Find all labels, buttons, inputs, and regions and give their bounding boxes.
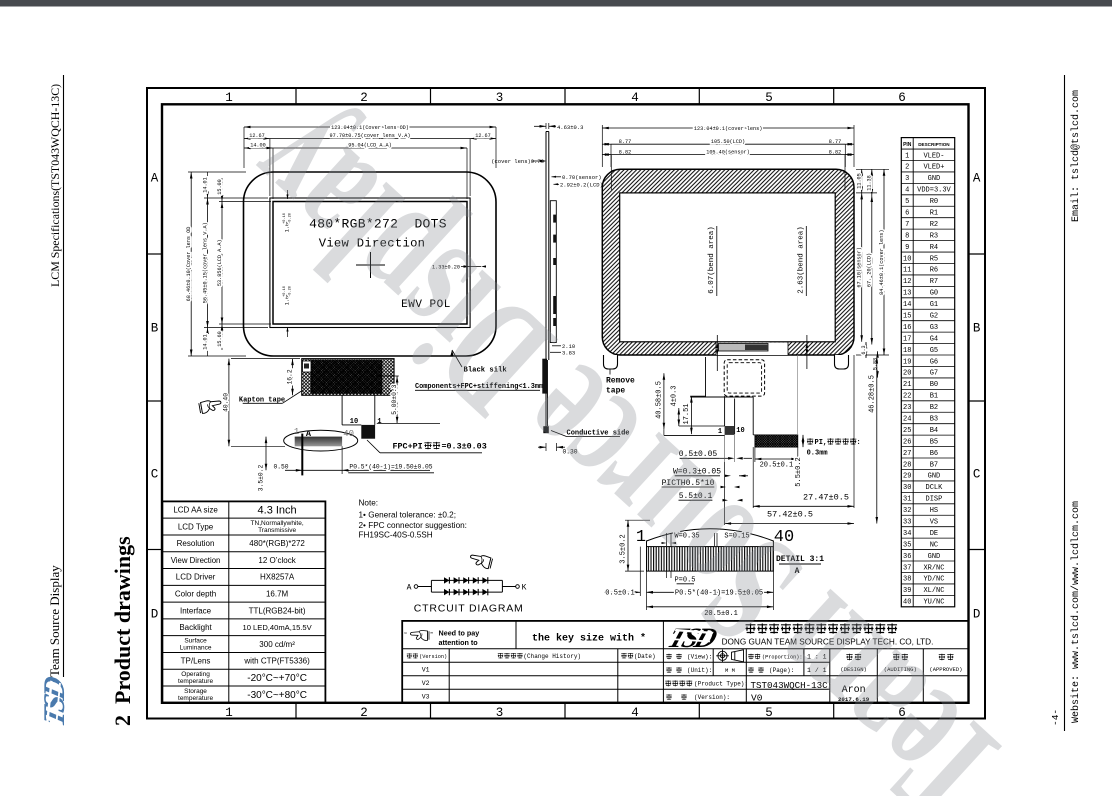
svg-text:PI,: PI, — [815, 439, 828, 447]
svg-text:4: 4 — [631, 91, 639, 105]
svg-text:5.88: 5.88 — [872, 358, 878, 370]
svg-text:4.63±0.3: 4.63±0.3 — [557, 124, 583, 131]
svg-text:19: 19 — [903, 358, 911, 366]
svg-text:1: 1 — [225, 706, 233, 720]
svg-text:5: 5 — [765, 91, 773, 105]
svg-text:11.38: 11.38 — [867, 175, 873, 191]
svg-text:Backlight: Backlight — [179, 623, 212, 632]
svg-text:0.70(sensor): 0.70(sensor) — [562, 174, 602, 181]
svg-text:32: 32 — [903, 507, 911, 515]
svg-text:4.3 Inch: 4.3 Inch — [258, 505, 297, 517]
svg-text:GND: GND — [928, 473, 941, 481]
svg-text:(Version): (Version) — [419, 654, 447, 660]
svg-text:B2: B2 — [930, 404, 938, 412]
svg-text:Interface: Interface — [180, 606, 212, 615]
svg-text:B6: B6 — [930, 450, 938, 458]
svg-text:4: 4 — [631, 706, 639, 720]
svg-text:2 Product drawings: 2 Product drawings — [110, 536, 135, 726]
svg-text:LCM Specifications(TST043WQCH-: LCM Specifications(TST043WQCH-13C) — [48, 84, 62, 287]
svg-text:11.05: 11.05 — [856, 173, 862, 189]
svg-text:15: 15 — [903, 312, 911, 320]
svg-text:R2: R2 — [930, 221, 938, 229]
svg-text:XR/NC: XR/NC — [923, 564, 944, 572]
svg-text:-30°C~+80°C: -30°C~+80°C — [247, 690, 307, 701]
svg-text:1: 1 — [294, 427, 299, 437]
svg-text:56.45±0.15(cover lens V.A): 56.45±0.15(cover lens V.A) — [202, 222, 208, 303]
svg-text:105.40(sensor): 105.40(sensor) — [706, 149, 750, 155]
svg-text:1: 1 — [377, 418, 381, 426]
svg-text:A: A — [407, 584, 412, 593]
svg-text:G6: G6 — [930, 358, 938, 366]
svg-text:C: C — [973, 468, 981, 482]
svg-text:6.07(bend area): 6.07(bend area) — [708, 226, 716, 294]
svg-text:A: A — [151, 172, 159, 186]
svg-text:7: 7 — [905, 221, 909, 229]
svg-text:(Date): (Date) — [634, 653, 656, 660]
svg-text:3.5±0.2: 3.5±0.2 — [258, 465, 265, 492]
svg-text:2• FPC connector suggestion:: 2• FPC connector suggestion: — [359, 521, 467, 530]
svg-text:25: 25 — [903, 427, 911, 435]
svg-text:GND: GND — [928, 553, 941, 561]
svg-text:XL/NC: XL/NC — [923, 587, 944, 595]
svg-text:D: D — [151, 608, 159, 622]
svg-text::: : — [857, 439, 861, 447]
svg-text:TTL(RGB24-bit): TTL(RGB24-bit) — [249, 606, 306, 615]
svg-text:8: 8 — [905, 232, 909, 240]
svg-text:6: 6 — [898, 91, 906, 105]
svg-text:G1: G1 — [930, 301, 938, 309]
svg-text:DE: DE — [930, 530, 938, 538]
svg-text:HX8257A: HX8257A — [260, 573, 295, 582]
svg-text:LCD AA size: LCD AA size — [173, 506, 218, 515]
svg-text:R5: R5 — [930, 255, 938, 263]
svg-text:A: A — [306, 429, 312, 439]
svg-text:39: 39 — [903, 587, 911, 595]
svg-text:(Change History): (Change History) — [523, 653, 581, 660]
svg-text:15.60: 15.60 — [217, 331, 223, 347]
svg-text:46.28±0.5: 46.28±0.5 — [868, 375, 876, 413]
svg-text:28: 28 — [903, 461, 911, 469]
svg-text:12: 12 — [903, 278, 911, 286]
svg-text:10 LED,40mA,15.5V: 10 LED,40mA,15.5V — [242, 623, 312, 632]
svg-text:Resolution: Resolution — [177, 539, 215, 548]
svg-text:3: 3 — [905, 175, 909, 183]
svg-text:3: 3 — [496, 706, 504, 720]
svg-text:temperature: temperature — [178, 678, 213, 685]
svg-text:9: 9 — [905, 244, 909, 252]
svg-text:-20°C~+70°C: -20°C~+70°C — [247, 673, 307, 684]
svg-text:View Direction: View Direction — [171, 556, 221, 565]
svg-text:10: 10 — [736, 427, 744, 435]
svg-text:LCD Driver: LCD Driver — [176, 573, 216, 582]
svg-text:FH19SC-40S-0.5SH: FH19SC-40S-0.5SH — [359, 531, 433, 540]
svg-text:16.7M: 16.7M — [266, 590, 289, 599]
svg-text:53.856(LCD A.A): 53.856(LCD A.A) — [217, 239, 223, 286]
svg-text:18: 18 — [903, 347, 911, 355]
svg-text:YD/NC: YD/NC — [923, 576, 944, 584]
svg-text:PIN: PIN — [903, 142, 912, 148]
svg-text:Luminance: Luminance — [180, 645, 212, 652]
svg-text:Storage: Storage — [184, 688, 207, 695]
svg-text:14.01: 14.01 — [202, 177, 208, 193]
svg-text:Team Source Display: Team Source Display — [47, 565, 62, 677]
svg-text:68.46±0.10(Cover lens OD: 68.46±0.10(Cover lens OD — [186, 227, 192, 302]
svg-text:17: 17 — [903, 335, 911, 343]
svg-text:R1: R1 — [930, 209, 938, 217]
svg-text:G5: G5 — [930, 347, 938, 355]
svg-text:LCD Type: LCD Type — [178, 522, 214, 531]
svg-text:Note:: Note: — [359, 499, 379, 508]
svg-text:21: 21 — [903, 381, 911, 389]
svg-text:14.01: 14.01 — [202, 334, 208, 350]
svg-text:B7: B7 — [930, 461, 938, 469]
svg-text:12.67: 12.67 — [475, 133, 491, 139]
svg-text:16: 16 — [903, 324, 911, 332]
svg-text:B3: B3 — [930, 415, 938, 423]
svg-text:11: 11 — [903, 267, 911, 275]
svg-text:36: 36 — [903, 553, 911, 561]
svg-text:5.5±0.2: 5.5±0.2 — [795, 457, 803, 486]
svg-text:VS: VS — [930, 518, 938, 526]
svg-text:12 O’clock: 12 O’clock — [258, 556, 296, 565]
svg-text:DISP: DISP — [926, 496, 943, 504]
svg-text:33: 33 — [903, 518, 911, 526]
svg-text:DCLK: DCLK — [926, 484, 944, 492]
svg-text:B: B — [151, 322, 159, 336]
svg-text:Operating: Operating — [181, 671, 210, 678]
svg-text:R3: R3 — [930, 232, 938, 240]
svg-text:23: 23 — [903, 404, 911, 412]
svg-text:Need to pay: Need to pay — [439, 629, 480, 638]
svg-text:1• General tolerance: ±0.2;: 1• General tolerance: ±0.2; — [359, 511, 456, 520]
svg-text:B1: B1 — [930, 393, 938, 401]
svg-text:5: 5 — [905, 198, 909, 206]
svg-text:(cover lens)0.70: (cover lens)0.70 — [491, 158, 544, 165]
svg-text:temperature: temperature — [178, 695, 213, 702]
svg-text:V3: V3 — [422, 694, 430, 701]
svg-text:Color depth: Color depth — [175, 590, 216, 599]
svg-text:14.00: 14.00 — [250, 143, 266, 149]
svg-text:TP/Lens: TP/Lens — [181, 657, 211, 666]
svg-text:20.5±0.1: 20.5±0.1 — [760, 462, 794, 470]
svg-text:B5: B5 — [930, 438, 938, 446]
svg-text:R6: R6 — [930, 267, 938, 275]
svg-text:Website: www.tslcd.com/www.lcd: Website: www.tslcd.com/www.lcdlcm.com — [1070, 501, 1082, 723]
svg-text:38: 38 — [903, 576, 911, 584]
svg-text:30: 30 — [903, 484, 911, 492]
svg-text:VLED-: VLED- — [923, 152, 944, 160]
svg-text:2.63(bend area): 2.63(bend area) — [798, 226, 806, 294]
svg-text:V2: V2 — [422, 680, 430, 687]
svg-text:105.50(LCD): 105.50(LCD) — [711, 139, 745, 145]
svg-text:attention to: attention to — [439, 638, 479, 647]
svg-text:(Version):: (Version): — [694, 694, 730, 701]
svg-text:31: 31 — [903, 496, 911, 504]
svg-text:1: 1 — [905, 152, 909, 160]
svg-text:D: D — [973, 608, 981, 622]
svg-text:67.10(sensor): 67.10(sensor) — [857, 247, 863, 287]
svg-text:14: 14 — [903, 301, 911, 309]
svg-text:2.92±0.2(LCD): 2.92±0.2(LCD) — [560, 182, 603, 189]
svg-text:G3: G3 — [930, 324, 938, 332]
svg-text:G4: G4 — [930, 335, 938, 343]
svg-text:NC: NC — [930, 541, 938, 549]
svg-text:10: 10 — [903, 255, 911, 263]
svg-text:2: 2 — [905, 164, 909, 172]
svg-text:the key size with *: the key size with * — [532, 633, 646, 645]
svg-text:CTRCUIT DIAGRAM: CTRCUIT DIAGRAM — [414, 603, 524, 615]
svg-text:YU/NC: YU/NC — [923, 599, 944, 607]
svg-text:13: 13 — [903, 290, 911, 298]
svg-text:20: 20 — [903, 370, 911, 378]
svg-text:G0: G0 — [930, 290, 938, 298]
svg-text:B: B — [973, 322, 981, 336]
svg-text:3: 3 — [496, 91, 504, 105]
svg-text:35: 35 — [903, 541, 911, 549]
svg-text:HS: HS — [930, 507, 938, 515]
svg-text:TN,Normallywhite,: TN,Normallywhite, — [251, 520, 304, 527]
svg-text:A: A — [973, 172, 981, 186]
svg-text:1: 1 — [718, 428, 722, 436]
svg-text:40: 40 — [903, 599, 911, 607]
svg-text:12.67: 12.67 — [249, 133, 265, 139]
svg-text:40: 40 — [343, 429, 354, 439]
svg-text:37: 37 — [903, 564, 911, 572]
svg-text:27.47±0.5: 27.47±0.5 — [803, 493, 849, 503]
svg-text:67. 20(LCD): 67. 20(LCD) — [867, 253, 873, 287]
svg-text:15.00: 15.00 — [217, 179, 223, 195]
svg-text:2: 2 — [360, 706, 368, 720]
svg-text:-4-: -4- — [1050, 709, 1061, 726]
svg-text:B4: B4 — [930, 427, 938, 435]
svg-text:R4: R4 — [930, 244, 938, 252]
svg-text:2: 2 — [360, 91, 368, 105]
svg-text:0.50: 0.50 — [273, 464, 288, 471]
svg-text:B0: B0 — [930, 381, 938, 389]
svg-text:G2: G2 — [930, 312, 938, 320]
svg-text:123.04±0.1(cover lens): 123.04±0.1(cover lens) — [694, 126, 763, 132]
svg-text:R0: R0 — [930, 198, 938, 206]
svg-text:P0.5*(40-1)=19.50±0.05: P0.5*(40-1)=19.50±0.05 — [349, 464, 432, 471]
svg-text:4: 4 — [905, 187, 909, 195]
svg-text:34: 34 — [903, 530, 911, 538]
svg-text:VDD=3.3V: VDD=3.3V — [917, 187, 951, 195]
svg-text:with CTP(FT5336): with CTP(FT5336) — [243, 657, 310, 666]
svg-text:FPC+PI: FPC+PI — [393, 441, 423, 451]
svg-text:Surface: Surface — [184, 638, 207, 645]
svg-text:300 cd/m²: 300 cd/m² — [259, 640, 295, 649]
svg-text:10: 10 — [350, 418, 358, 426]
svg-text:G7: G7 — [930, 370, 938, 378]
svg-text:24: 24 — [903, 415, 911, 423]
svg-text:22: 22 — [903, 393, 911, 401]
svg-text:C: C — [151, 468, 159, 482]
svg-text:K: K — [522, 584, 527, 593]
svg-text:6: 6 — [905, 209, 909, 217]
svg-text:R7: R7 — [930, 278, 938, 286]
svg-text:0.3mm: 0.3mm — [807, 450, 828, 458]
svg-text:40.40: 40.40 — [223, 393, 230, 412]
svg-text:GND: GND — [928, 175, 941, 183]
svg-text:6.3: 6.3 — [861, 345, 867, 354]
svg-text:V1: V1 — [422, 667, 430, 674]
svg-text:29: 29 — [903, 473, 911, 481]
svg-text:VLED+: VLED+ — [923, 164, 944, 172]
svg-text:16.2: 16.2 — [286, 369, 293, 384]
svg-text:Transmissive: Transmissive — [258, 527, 296, 534]
svg-text:DESCRIPTION: DESCRIPTION — [918, 142, 950, 147]
svg-text:480*(RGB)*272: 480*(RGB)*272 — [249, 539, 305, 548]
svg-text:84.46±0.1(cover lens): 84.46±0.1(cover lens) — [879, 229, 885, 294]
svg-text:1: 1 — [225, 91, 233, 105]
svg-text:26: 26 — [903, 438, 911, 446]
svg-text:27: 27 — [903, 450, 911, 458]
svg-text:Email: tslcd@tslcd.com: Email: tslcd@tslcd.com — [1070, 90, 1082, 222]
